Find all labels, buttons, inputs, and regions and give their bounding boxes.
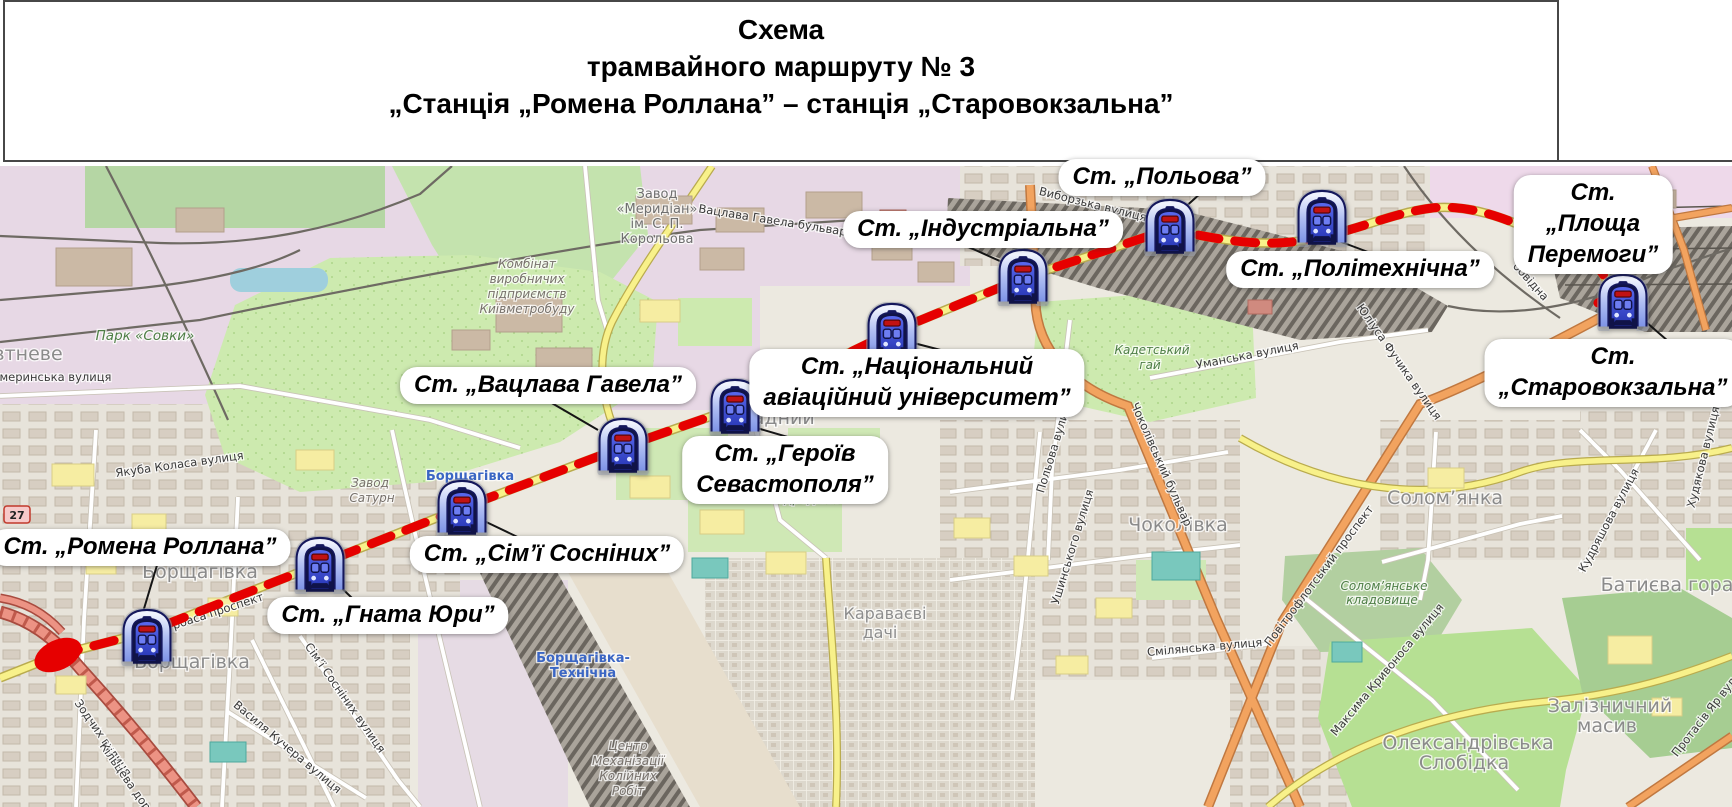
- map-label: втневе: [0, 343, 63, 365]
- map-label: Залізничний: [1548, 695, 1672, 717]
- header-divider: [1559, 160, 1732, 162]
- scheme-title-line1: Схема: [738, 11, 824, 48]
- station-label-vatslava-havela: Ст. „Вацлава Гавела”: [400, 367, 696, 404]
- map-label: Корольова: [621, 232, 694, 247]
- map-label: Батиєва гора: [1601, 574, 1732, 596]
- map-label: кладовище: [1346, 593, 1417, 607]
- map-label: Солом’янське: [1341, 579, 1428, 593]
- map-label: ім. С. П.: [631, 217, 684, 232]
- map-label: Робіт: [612, 784, 645, 798]
- map-label: Комбінат: [498, 257, 557, 271]
- station-label-romena-rollana: Ст. „Ромена Роллана”: [0, 529, 291, 566]
- map-label: Сатурн: [349, 491, 394, 505]
- tram-station-icon: [433, 479, 491, 537]
- station-label-starovokzalna: Ст. „Старовокзальна”: [1485, 339, 1732, 407]
- tram-station-icon: [291, 536, 349, 594]
- tram-route-scheme: Парк «Совки»втневеЯкуба Коласа вулицякме…: [0, 0, 1732, 807]
- map-label: Парк «Совки»: [96, 328, 195, 344]
- header: Схема трамвайного маршруту № 3 „Станція …: [0, 0, 1732, 166]
- map-label: Механізації: [592, 754, 666, 768]
- map-label: Борщагівка-: [536, 651, 630, 666]
- map-label: Київметробуду: [479, 302, 575, 316]
- station-label-ploshcha-peremohy: Ст. „Площа Перемоги”: [1514, 175, 1673, 274]
- tram-station-icon: [994, 248, 1052, 306]
- map-label: Завод: [637, 187, 678, 202]
- map-label: кмеринська вулиця: [0, 370, 111, 384]
- station-label-heroiv-sevastopolia: Ст. „Героїв Севастополя”: [682, 436, 888, 504]
- road-ref-badge: 27: [4, 506, 30, 523]
- tram-station-icon: [1594, 273, 1652, 331]
- map-label: Караваєві: [843, 604, 926, 623]
- tram-station-icon: [594, 417, 652, 475]
- road-ref-text: 27: [9, 509, 24, 522]
- map-label: підприємств: [487, 287, 566, 301]
- map-label: Центр: [608, 739, 648, 753]
- scheme-title-box: Схема трамвайного маршруту № 3 „Станція …: [3, 0, 1559, 162]
- map-label: Завод: [351, 476, 389, 490]
- station-label-hnata-yury: Ст. „Гната Юри”: [267, 597, 508, 634]
- map-label: Солом’янка: [1387, 487, 1503, 509]
- map-label: Олександрівська: [1382, 732, 1553, 754]
- map-label: «Меридіан»: [617, 202, 698, 217]
- tram-station-icon: [1293, 189, 1351, 247]
- station-label-polova: Ст. „Польова”: [1059, 159, 1266, 196]
- map-label: дачі: [863, 623, 898, 642]
- station-label-industrialna: Ст. „Індустріальна”: [843, 211, 1123, 248]
- scheme-title-line2: трамвайного маршруту № 3: [587, 48, 975, 85]
- station-label-simyi-sosninykh: Ст. „Сім’ї Сосніних”: [410, 536, 684, 573]
- station-label-nau: Ст. „Національний авіаційний університет…: [749, 349, 1084, 417]
- map-label: виробничих: [490, 272, 566, 286]
- map-label: Кадетський: [1114, 343, 1189, 357]
- map-label: Слобідка: [1419, 752, 1509, 774]
- station-label-politekhnichna: Ст. „Політехнічна”: [1226, 251, 1494, 288]
- tram-station-icon: [118, 608, 176, 666]
- map-label: гай: [1139, 358, 1161, 372]
- map-label: масив: [1577, 715, 1637, 737]
- map-label: Колійних: [599, 769, 657, 783]
- tram-station-icon: [1141, 198, 1199, 256]
- map-label: Технічна: [550, 666, 616, 681]
- scheme-title-line3: „Станція „Ромена Роллана” – станція „Ста…: [388, 85, 1173, 122]
